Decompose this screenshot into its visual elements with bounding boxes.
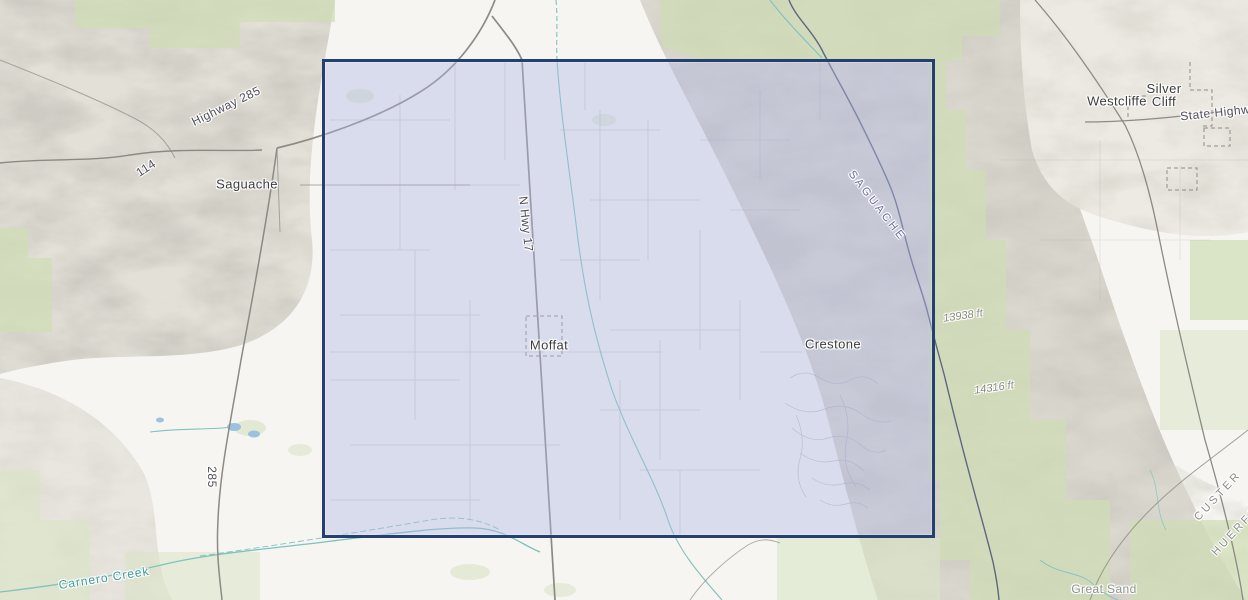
town-label-crestone: Crestone: [805, 337, 861, 352]
town-label-saguache: Saguache: [216, 177, 278, 192]
town-label-silver-cliff-line2: Cliff: [1147, 95, 1182, 108]
selection-extent-rectangle[interactable]: [322, 59, 935, 538]
town-label-moffat: Moffat: [530, 338, 568, 353]
town-label-silver-cliff: Silver Cliff: [1147, 82, 1182, 108]
town-label-westcliffe: Westcliffe: [1087, 94, 1147, 109]
map-viewport[interactable]: Highway 285 114 Saguache N Hwy 17 Moffat…: [0, 0, 1248, 600]
road-label-285: 285: [205, 466, 219, 488]
place-label-great-sand: Great Sand: [1071, 582, 1136, 596]
